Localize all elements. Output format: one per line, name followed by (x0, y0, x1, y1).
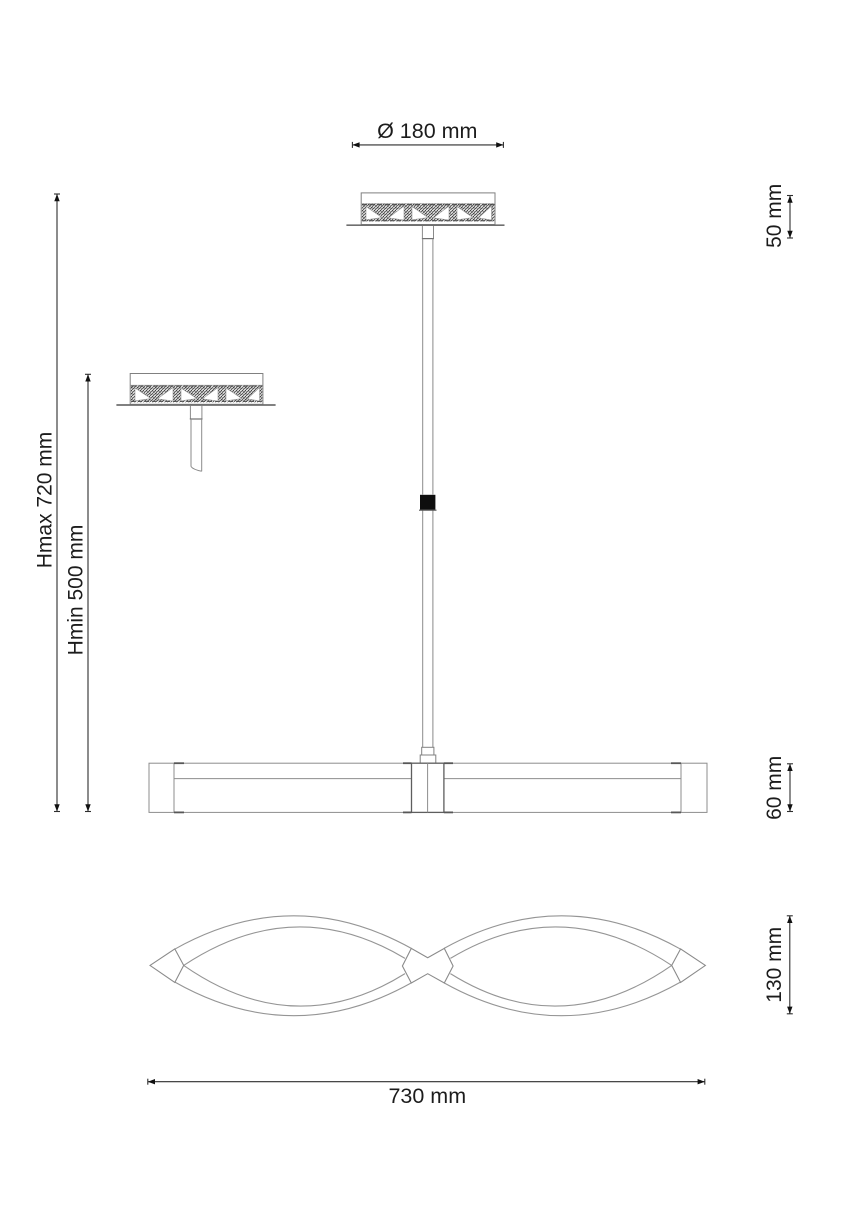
svg-text:130 mm: 130 mm (763, 927, 786, 1003)
svg-text:730 mm: 730 mm (388, 1084, 466, 1108)
svg-text:60 mm: 60 mm (763, 756, 786, 820)
svg-text:50 mm: 50 mm (763, 184, 786, 248)
svg-text:Hmax 720 mm: Hmax 720 mm (34, 432, 57, 569)
svg-text:Hmin 500 mm: Hmin 500 mm (65, 525, 88, 656)
svg-text:Ø 180 mm: Ø 180 mm (377, 119, 477, 143)
